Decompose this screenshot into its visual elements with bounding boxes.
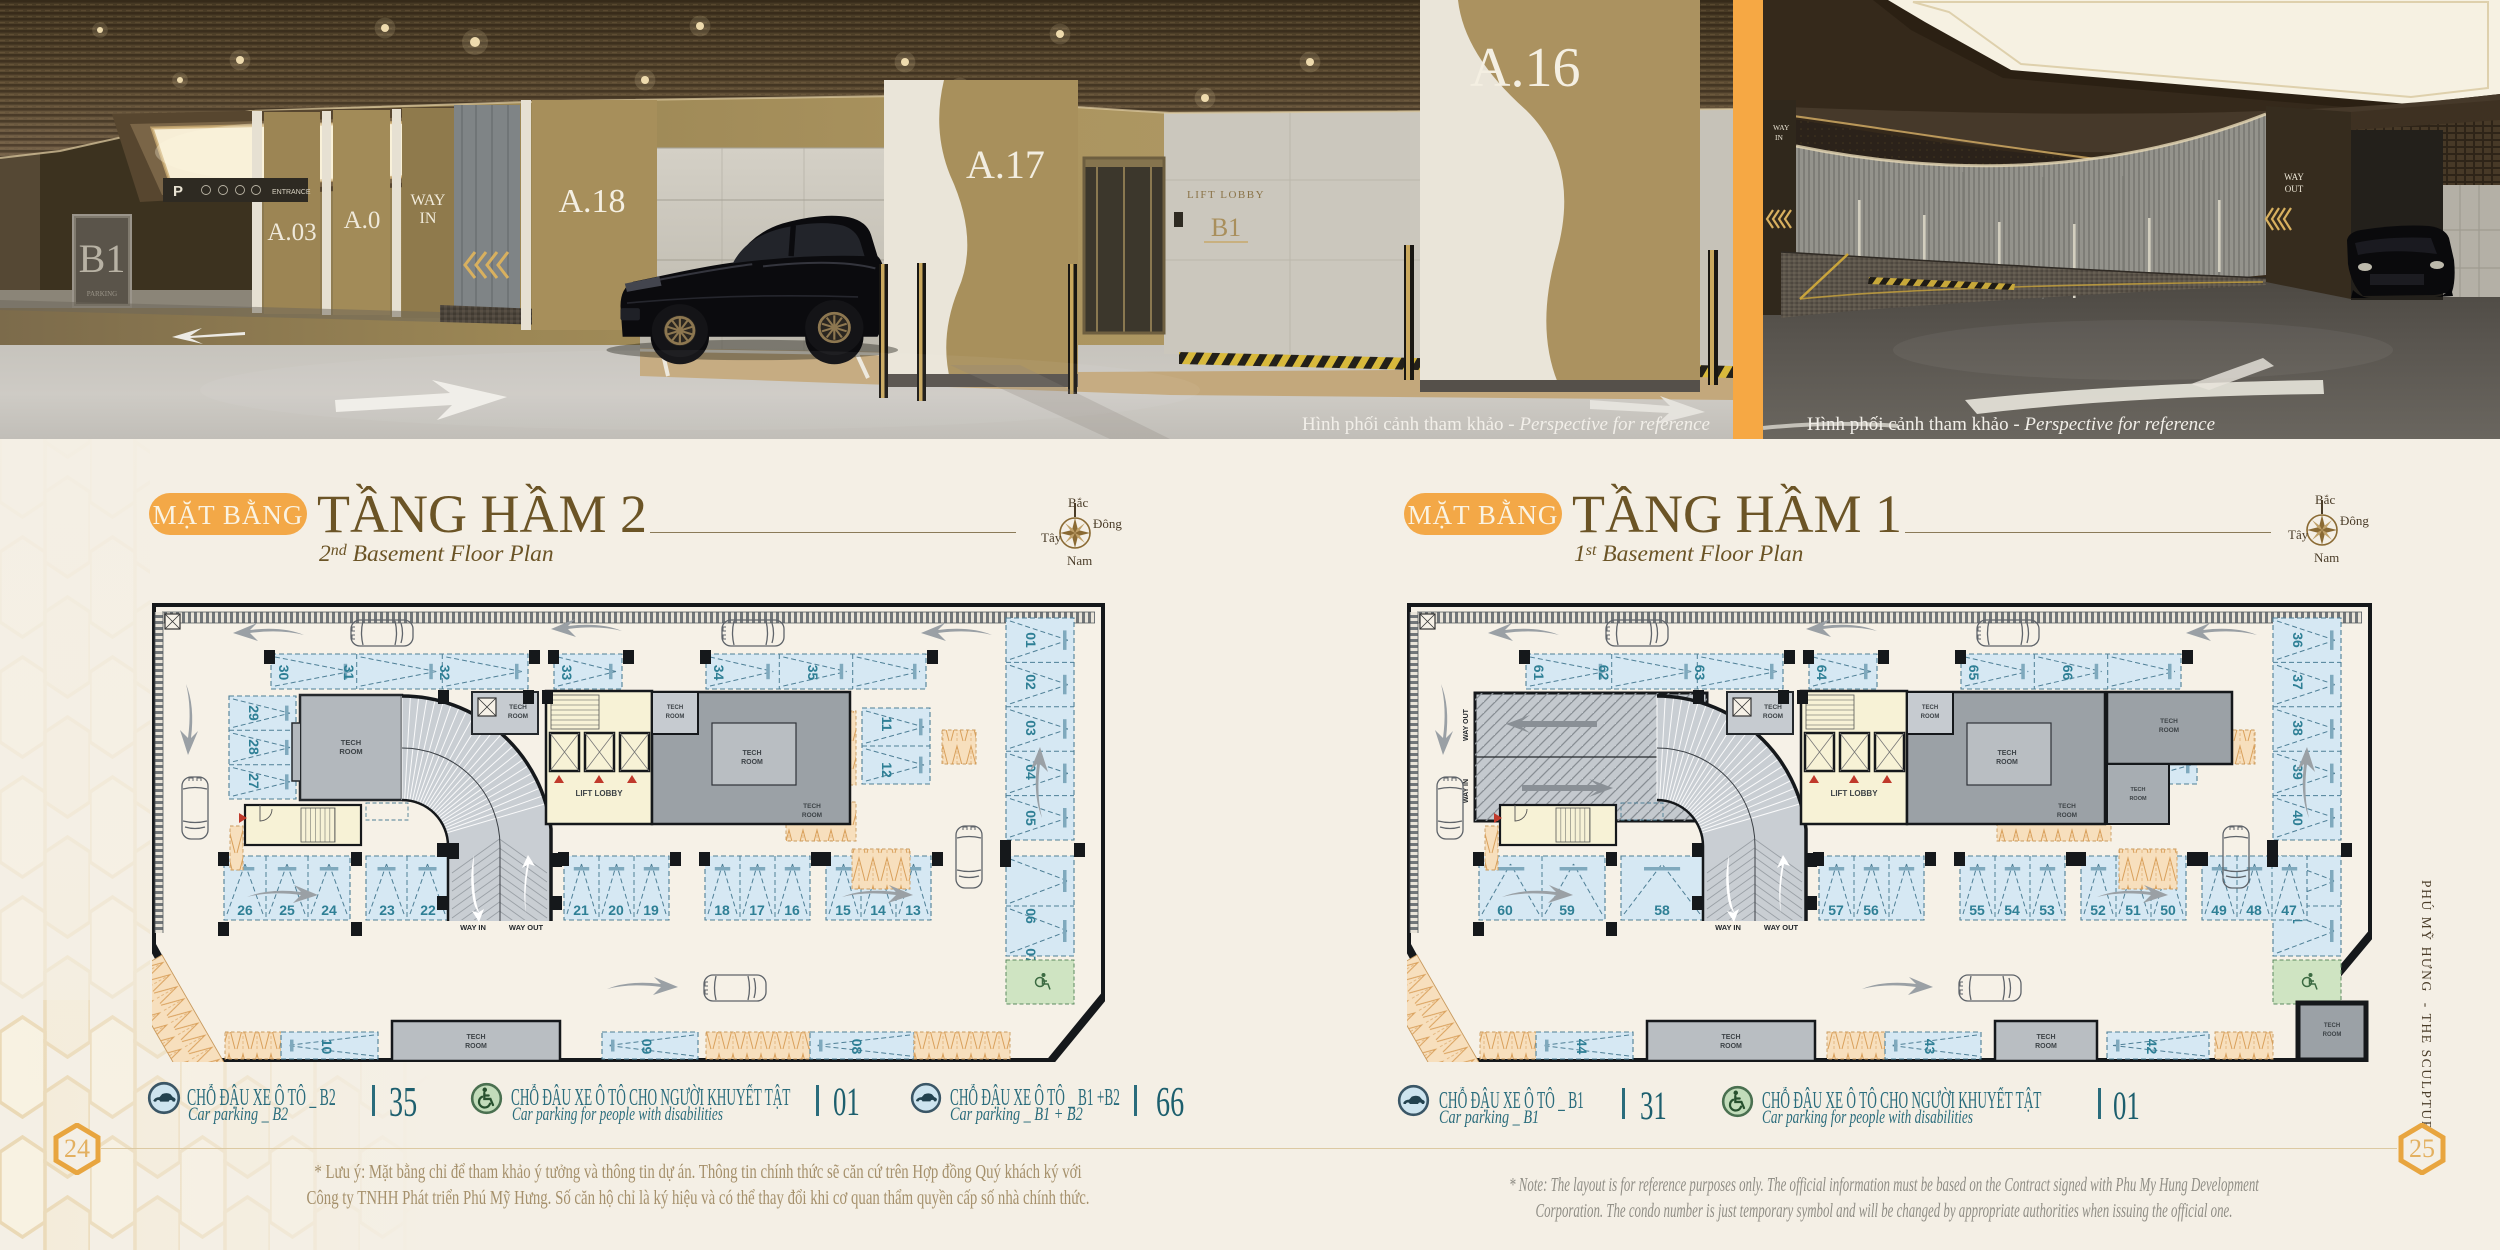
svg-text:ENTRANCE: ENTRANCE: [272, 189, 311, 196]
svg-text:Đông: Đông: [1093, 516, 1122, 531]
svg-text:15: 15: [835, 902, 851, 918]
svg-text:TECH: TECH: [667, 705, 683, 711]
svg-text:ROOM: ROOM: [508, 713, 528, 720]
svg-text:03: 03: [1023, 720, 1039, 736]
svg-text:ROOM: ROOM: [1996, 759, 2018, 766]
svg-text:38: 38: [2290, 720, 2306, 736]
svg-text:TECH: TECH: [2131, 787, 2146, 793]
svg-text:B1: B1: [1211, 213, 1241, 242]
svg-text:TECH: TECH: [803, 803, 821, 810]
svg-text:58: 58: [1654, 902, 1670, 918]
svg-text:53: 53: [2039, 902, 2055, 918]
svg-text:66: 66: [2060, 665, 2076, 681]
svg-text:54: 54: [2004, 902, 2020, 918]
svg-text:25: 25: [279, 902, 295, 918]
svg-text:28: 28: [246, 739, 262, 755]
svg-text:Đông: Đông: [2340, 513, 2369, 528]
svg-text:Bắc: Bắc: [1068, 495, 1088, 510]
svg-text:Tây: Tây: [1041, 530, 1062, 545]
svg-text:TECH: TECH: [1721, 1034, 1740, 1041]
svg-text:56: 56: [1863, 902, 1879, 918]
svg-text:A.03: A.03: [267, 219, 316, 246]
svg-text:TECH: TECH: [742, 750, 761, 757]
svg-text:09: 09: [639, 1039, 655, 1055]
svg-text:44: 44: [1574, 1039, 1590, 1055]
svg-text:A.18: A.18: [558, 183, 625, 220]
svg-text:11: 11: [879, 717, 895, 732]
svg-text:20: 20: [608, 902, 624, 918]
svg-text:19: 19: [643, 902, 659, 918]
svg-text:63: 63: [1692, 665, 1708, 681]
svg-text:Bắc: Bắc: [2315, 492, 2335, 507]
svg-text:LIFT LOBBY: LIFT LOBBY: [1187, 189, 1265, 201]
svg-text:ROOM: ROOM: [339, 747, 362, 756]
svg-text:06: 06: [1023, 908, 1039, 924]
svg-text:ROOM: ROOM: [2129, 796, 2147, 802]
svg-text:08: 08: [849, 1039, 865, 1055]
svg-text:ROOM: ROOM: [1720, 1043, 1742, 1050]
svg-text:33: 33: [559, 665, 575, 681]
svg-text:43: 43: [1922, 1039, 1938, 1055]
svg-text:57: 57: [1828, 902, 1844, 918]
svg-text:65: 65: [1966, 665, 1982, 681]
svg-text:WAY IN: WAY IN: [1463, 779, 1470, 803]
svg-text:31: 31: [341, 665, 357, 681]
svg-text:21: 21: [573, 902, 589, 918]
svg-text:ROOM: ROOM: [2035, 1043, 2057, 1050]
svg-text:14: 14: [870, 902, 886, 918]
svg-text:OUT: OUT: [2285, 184, 2304, 194]
svg-text:02: 02: [1023, 674, 1039, 690]
svg-text:29: 29: [246, 705, 262, 721]
svg-text:P: P: [173, 183, 183, 200]
svg-text:61: 61: [1531, 665, 1547, 681]
svg-text:ROOM: ROOM: [1921, 714, 1940, 720]
svg-text:22: 22: [420, 902, 436, 918]
svg-text:27: 27: [246, 773, 262, 789]
svg-text:64: 64: [1814, 665, 1830, 681]
svg-text:Tây: Tây: [2288, 527, 2309, 542]
svg-text:WAY: WAY: [1773, 123, 1790, 132]
svg-text:A.0: A.0: [344, 207, 381, 234]
svg-text:59: 59: [1559, 902, 1575, 918]
svg-text:16: 16: [784, 902, 800, 918]
svg-text:60: 60: [1497, 902, 1513, 918]
svg-text:12: 12: [879, 762, 895, 778]
svg-text:TECH: TECH: [2160, 718, 2178, 725]
svg-text:13: 13: [905, 902, 921, 918]
svg-text:49: 49: [2211, 902, 2227, 918]
svg-text:ROOM: ROOM: [802, 812, 822, 819]
svg-text:IN: IN: [1775, 133, 1783, 142]
svg-text:10: 10: [319, 1039, 335, 1055]
svg-text:32: 32: [437, 665, 453, 681]
svg-text:24: 24: [321, 902, 337, 918]
svg-text:25: 25: [2409, 1134, 2435, 1163]
svg-text:18: 18: [714, 902, 730, 918]
svg-text:01: 01: [1023, 632, 1039, 648]
svg-text:62: 62: [1596, 665, 1612, 681]
svg-text:55: 55: [1969, 902, 1985, 918]
svg-text:ROOM: ROOM: [741, 759, 763, 766]
svg-text:47: 47: [2281, 902, 2297, 918]
svg-text:TECH: TECH: [1764, 704, 1782, 711]
svg-text:WAY OUT: WAY OUT: [509, 923, 544, 932]
svg-text:ROOM: ROOM: [465, 1043, 487, 1050]
svg-text:35: 35: [805, 665, 821, 681]
svg-text:ROOM: ROOM: [666, 714, 685, 720]
svg-text:PARKING: PARKING: [87, 290, 117, 298]
svg-text:WAY OUT: WAY OUT: [1764, 923, 1799, 932]
svg-text:B1: B1: [79, 236, 126, 281]
svg-text:TECH: TECH: [466, 1034, 485, 1041]
svg-text:WAY OUT: WAY OUT: [1463, 708, 1470, 741]
svg-text:ROOM: ROOM: [2159, 727, 2179, 734]
svg-text:05: 05: [1023, 810, 1039, 826]
svg-text:51: 51: [2125, 902, 2141, 918]
svg-text:42: 42: [2144, 1039, 2160, 1055]
svg-text:ROOM: ROOM: [1763, 713, 1783, 720]
svg-text:50: 50: [2160, 902, 2176, 918]
svg-text:A.16: A.16: [1470, 37, 1580, 99]
svg-text:WAY: WAY: [2284, 172, 2304, 182]
svg-text:TECH: TECH: [2036, 1034, 2055, 1041]
svg-text:TECH: TECH: [341, 738, 361, 747]
svg-text:34: 34: [711, 665, 727, 681]
svg-text:TECH: TECH: [2324, 1023, 2340, 1029]
svg-text:23: 23: [379, 902, 395, 918]
svg-text:IN: IN: [420, 210, 437, 227]
svg-text:Nam: Nam: [1067, 553, 1092, 568]
svg-text:ROOM: ROOM: [2323, 1032, 2342, 1038]
svg-text:WAY IN: WAY IN: [460, 923, 486, 932]
svg-text:A.17: A.17: [966, 142, 1045, 187]
svg-text:WAY IN: WAY IN: [1715, 923, 1741, 932]
svg-text:24: 24: [64, 1134, 90, 1163]
svg-text:52: 52: [2090, 902, 2106, 918]
svg-text:48: 48: [2246, 902, 2262, 918]
svg-text:LIFT LOBBY: LIFT LOBBY: [575, 789, 623, 798]
svg-text:TECH: TECH: [2058, 803, 2076, 810]
svg-text:Nam: Nam: [2314, 550, 2339, 565]
svg-text:30: 30: [276, 665, 292, 681]
svg-text:36: 36: [2290, 632, 2306, 648]
svg-text:40: 40: [2290, 810, 2306, 826]
svg-text:ROOM: ROOM: [2057, 812, 2077, 819]
svg-text:TECH: TECH: [509, 704, 527, 711]
svg-text:TECH: TECH: [1997, 750, 2016, 757]
svg-text:WAY: WAY: [411, 192, 446, 209]
svg-text:LIFT LOBBY: LIFT LOBBY: [1830, 789, 1878, 798]
svg-text:TECH: TECH: [1922, 705, 1938, 711]
svg-text:37: 37: [2290, 674, 2306, 690]
svg-text:17: 17: [749, 902, 765, 918]
svg-text:26: 26: [237, 902, 253, 918]
